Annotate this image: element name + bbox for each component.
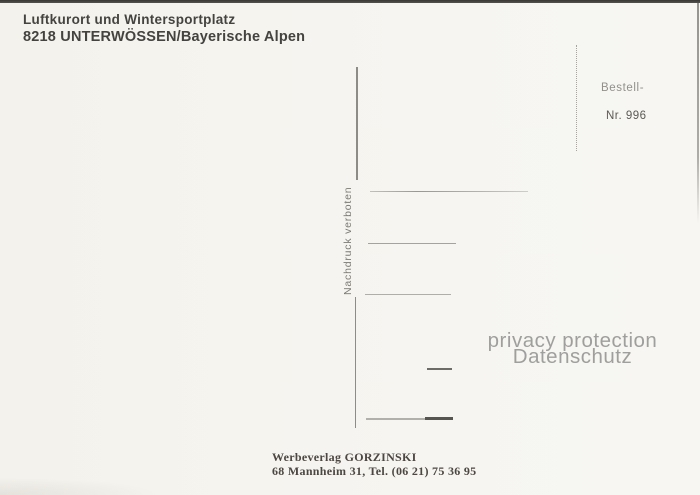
- copyright-notice: Nachdruck verboten: [342, 185, 359, 297]
- publisher-imprint: Werbeverlag GORZINSKI 68 Mannheim 31, Te…: [272, 450, 476, 478]
- address-ruled-line-1: [370, 191, 528, 192]
- postcard-back: Luftkurort und Wintersportplatz 8218 UNT…: [0, 0, 700, 495]
- privacy-watermark: privacy protection Datenschutz: [480, 333, 665, 364]
- address-ruled-line-5-dark-segment: [425, 417, 453, 420]
- postcard-header: Luftkurort und Wintersportplatz 8218 UNT…: [23, 11, 305, 46]
- scan-corner-shadow: [0, 477, 160, 495]
- divider-line-bottom: [355, 297, 357, 428]
- address-ruled-line-3: [365, 294, 451, 295]
- publisher-address: 68 Mannheim 31, Tel. (06 21) 75 36 95: [272, 464, 476, 478]
- stamp-box-dotted-edge: [576, 45, 577, 151]
- resort-location: 8218 UNTERWÖSSEN/Bayerische Alpen: [23, 28, 305, 46]
- scan-right-edge: [697, 3, 699, 223]
- scan-top-edge: [0, 0, 700, 3]
- order-label: Bestell-: [601, 82, 644, 94]
- divider-line-top: [356, 67, 358, 180]
- order-number: Nr. 996: [606, 110, 647, 122]
- publisher-name: Werbeverlag GORZINSKI: [272, 450, 476, 464]
- address-ruled-line-4: [427, 368, 452, 370]
- address-ruled-line-2: [368, 243, 456, 244]
- resort-title: Luftkurort und Wintersportplatz: [23, 11, 305, 28]
